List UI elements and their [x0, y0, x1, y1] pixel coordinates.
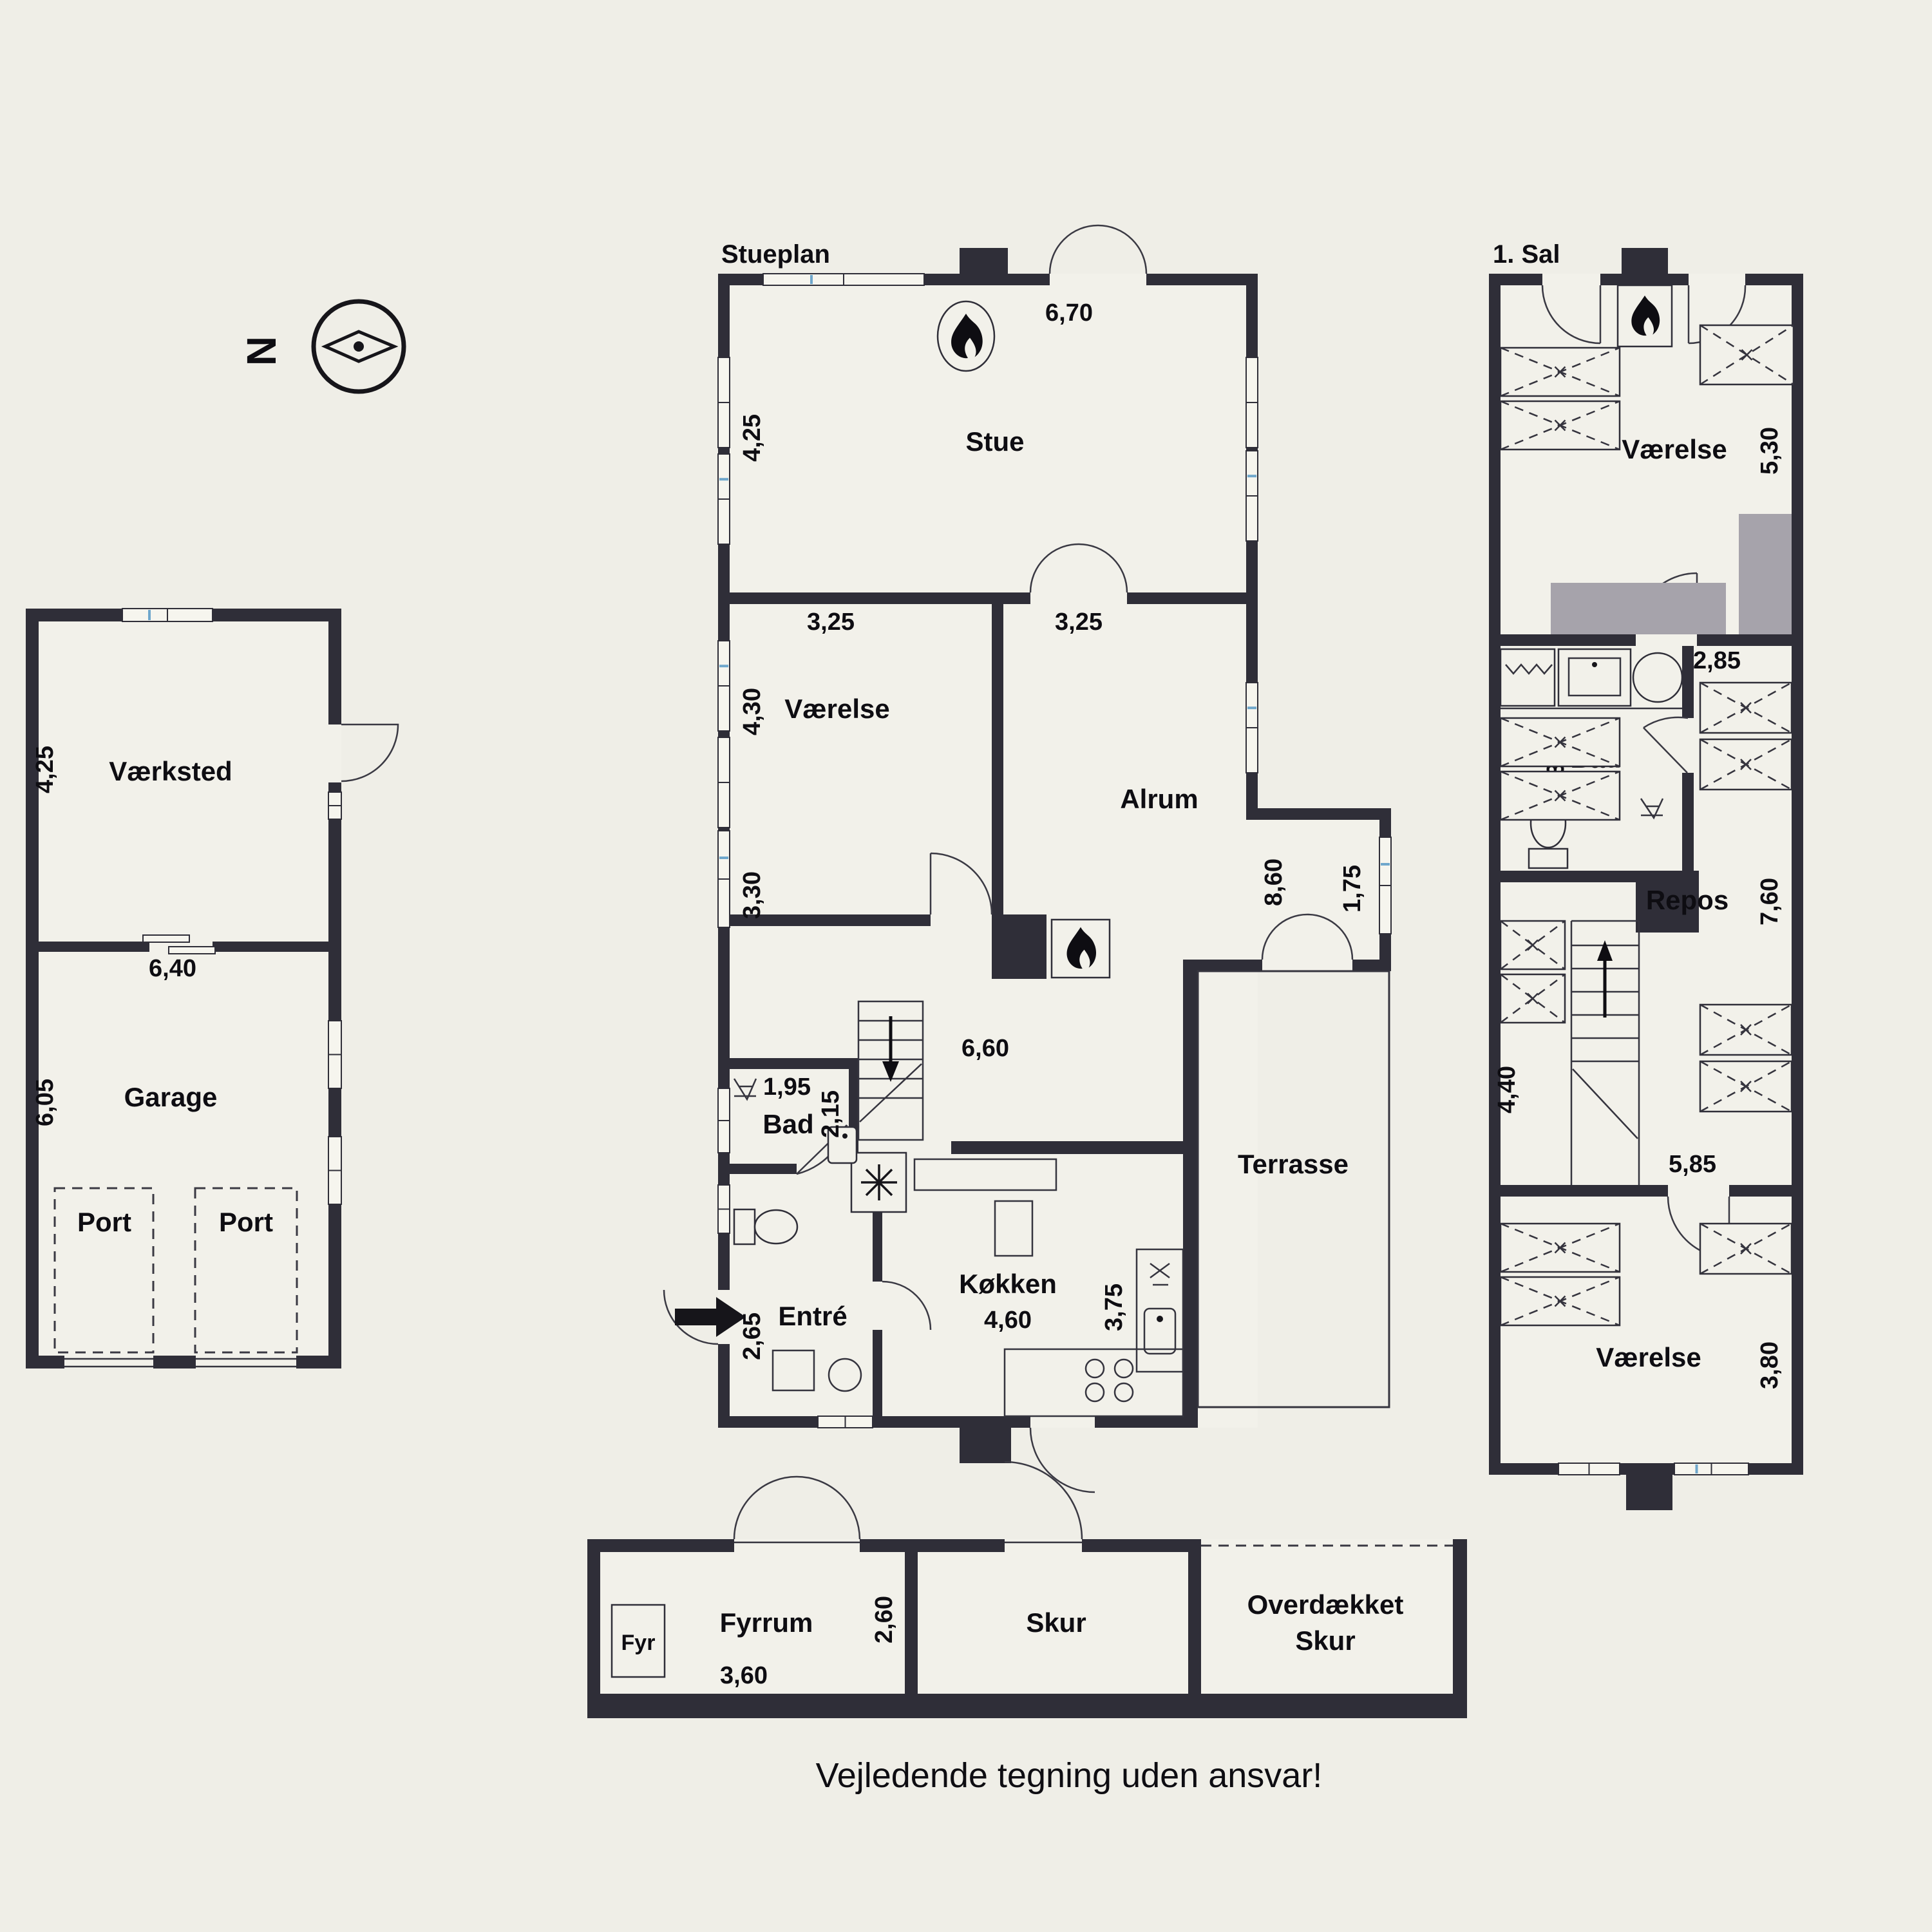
repos-label: Repos [1646, 885, 1728, 915]
koekken-width-dim: 4,60 [984, 1307, 1032, 1334]
garage-width-dim: 6,40 [149, 955, 196, 982]
disclaimer-text: Vejledende tegning uden ansvar! [816, 1756, 1323, 1795]
chimney-top [960, 248, 1008, 285]
cabinet-gray [1739, 514, 1792, 634]
port-left-label: Port [77, 1207, 131, 1237]
lower-left-dim: 3,30 [739, 871, 766, 919]
stairs-width-dim: 5,85 [1669, 1151, 1716, 1178]
stue-width-dim: 6,70 [1045, 299, 1093, 327]
alrum-window-dim: 1,75 [1339, 865, 1366, 913]
bad-width-dim: 1,95 [763, 1074, 811, 1101]
entre-height-dim: 2,65 [739, 1312, 766, 1360]
kitchen-tap-icon [1157, 1316, 1163, 1322]
vaerelse-width-dim: 3,25 [807, 609, 855, 636]
toilet-tank [1529, 849, 1567, 868]
vaerelse-bottom-label: Værelse [1596, 1342, 1701, 1372]
terrasse-label: Terrasse [1238, 1149, 1349, 1179]
compass-north-label: N [238, 336, 285, 366]
overdaekket-label-line2: Skur [1295, 1625, 1355, 1656]
koekken-label: Køkken [959, 1269, 1057, 1299]
alrum-pillar [992, 914, 1046, 979]
overdaekket-label-line1: Overdækket [1247, 1589, 1404, 1620]
stairs-height-dim: 4,40 [1493, 1066, 1520, 1113]
port-right-label: Port [219, 1207, 273, 1237]
floor-plan-canvas: N Port Port Værksted 4,25 6,40 Garage 6,… [0, 0, 1932, 1932]
desk-gray [1551, 583, 1726, 634]
boiler-label: Fyr [621, 1631, 656, 1655]
fyrrum-height-dim: 2,60 [871, 1596, 898, 1643]
refrigerator-snowflake-icon [861, 1164, 897, 1200]
washing-machine [1501, 649, 1555, 706]
garage-building-floor [26, 609, 341, 1368]
vaerksted-label: Værksted [109, 756, 232, 786]
stue-door-dim: 3,25 [1055, 609, 1103, 636]
vaerelse-bottom-height-dim: 3,80 [1756, 1341, 1783, 1389]
vaerelse-top-door-dim: 2,85 [1693, 647, 1741, 674]
stueplan-title: Stueplan [721, 240, 830, 269]
fyrrum-label: Fyrrum [720, 1607, 813, 1638]
vaerelse-top-label: Værelse [1622, 434, 1727, 464]
alrum-height-dim: 8,60 [1260, 858, 1287, 906]
vaerelse-label: Værelse [784, 694, 889, 724]
garage-label: Garage [124, 1082, 218, 1112]
vaerksted-garage-divider-wall [26, 942, 149, 952]
round-basin [1633, 653, 1682, 702]
koekken-height-dim: 3,75 [1101, 1283, 1128, 1331]
entre-label: Entré [778, 1301, 847, 1331]
first-floor-title: 1. Sal [1493, 240, 1560, 269]
alrum-label: Alrum [1120, 784, 1198, 814]
sliding-door [143, 935, 189, 942]
bad-depth-dim: 2,15 [817, 1090, 844, 1138]
koekken-alrum-wall [951, 1141, 1183, 1154]
vaerelse-height-dim: 4,30 [739, 688, 766, 735]
chimney-top [1622, 248, 1668, 285]
repos-height-dim: 7,60 [1756, 878, 1783, 925]
stue-label: Stue [965, 426, 1024, 457]
alrum-span-dim: 6,60 [961, 1035, 1009, 1062]
stue-height-dim: 4,25 [739, 414, 766, 462]
skur-label: Skur [1026, 1607, 1086, 1638]
compass-center-dot [354, 341, 364, 352]
chimney-bottom [960, 1428, 1011, 1463]
toilet-tank [734, 1209, 755, 1244]
vaerksted-height-dim: 4,25 [32, 746, 59, 793]
toilet-icon [755, 1210, 797, 1244]
vaerelse-top-height-dim: 5,30 [1756, 427, 1783, 475]
garage-height-dim: 6,05 [32, 1079, 59, 1126]
bad-label: Bad [762, 1109, 813, 1139]
chimney-bottom [1626, 1475, 1672, 1510]
fyrrum-width-dim: 3,60 [720, 1662, 768, 1689]
